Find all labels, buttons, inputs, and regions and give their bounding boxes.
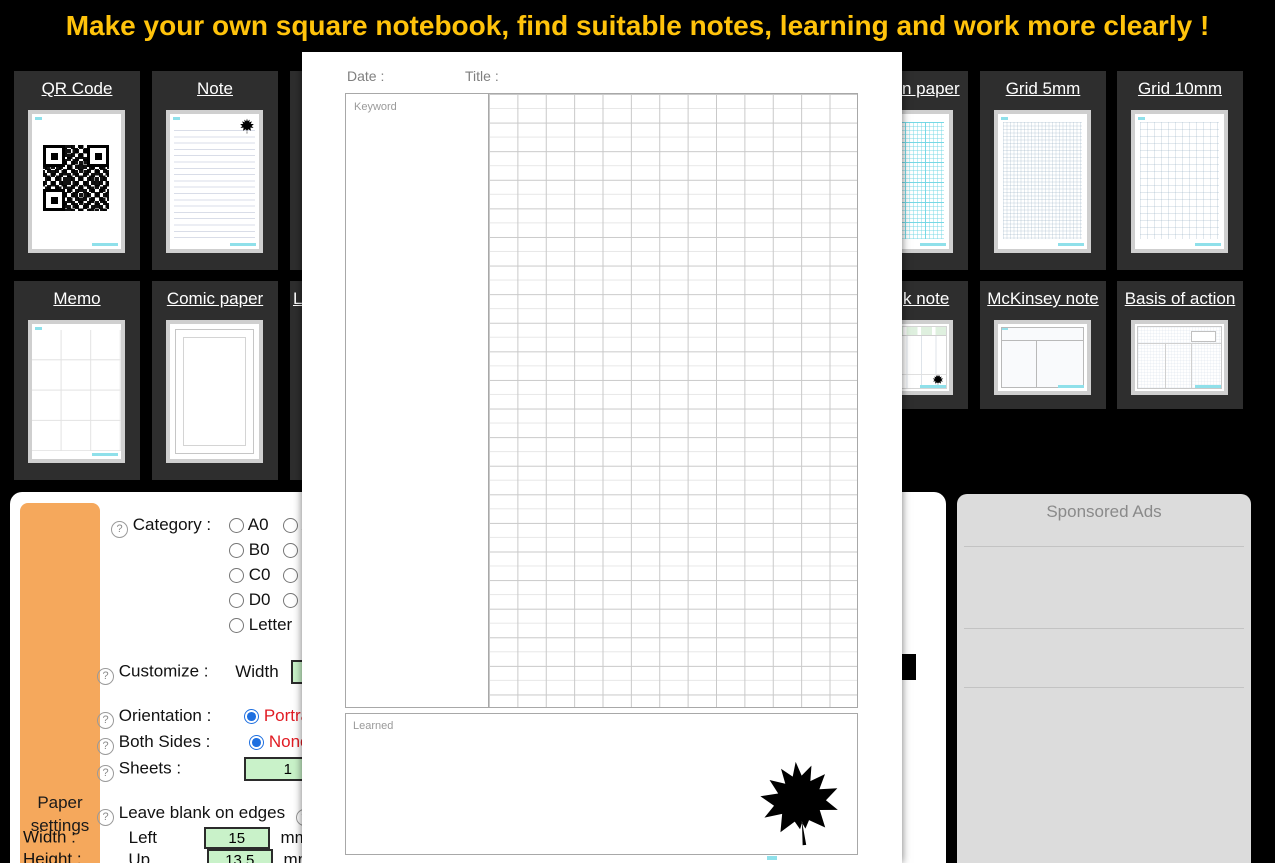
watermark bbox=[230, 243, 256, 246]
card-grid-10mm-link[interactable]: Grid 10mm bbox=[1117, 79, 1243, 99]
ads-divider bbox=[964, 687, 1244, 688]
mckinsey-divider bbox=[1036, 341, 1037, 387]
card-basis-of-action-link[interactable]: Basis of action bbox=[1117, 289, 1243, 309]
radio-d1[interactable] bbox=[283, 593, 298, 608]
margin-width-label: Width : bbox=[23, 828, 76, 847]
margin-left-input[interactable] bbox=[204, 827, 270, 849]
mckinsey-note-preview[interactable] bbox=[994, 320, 1091, 395]
blank-edges-row: ? Leave blank on edges ? bbox=[97, 803, 313, 826]
card-grid-10mm: Grid 10mm bbox=[1117, 71, 1243, 270]
basis-header-box bbox=[1191, 331, 1216, 343]
tab-label-line1: Paper bbox=[20, 793, 100, 813]
card-grid-5mm-link[interactable]: Grid 5mm bbox=[980, 79, 1106, 99]
mckinsey-frame bbox=[1001, 327, 1084, 388]
radio-a0[interactable] bbox=[229, 518, 244, 533]
memo-grid bbox=[32, 330, 121, 451]
margin-up-input[interactable] bbox=[207, 849, 273, 863]
grid-10mm-preview[interactable] bbox=[1131, 110, 1228, 253]
radio-d0[interactable] bbox=[229, 593, 244, 608]
note-body-box: Keyword bbox=[345, 93, 858, 708]
sponsored-ads-panel: Sponsored Ads bbox=[957, 494, 1251, 863]
margin-up-label: Up bbox=[128, 850, 150, 863]
margin-left-label: Left bbox=[129, 828, 157, 847]
card-memo-link[interactable]: Memo bbox=[14, 289, 140, 309]
radio-b1[interactable] bbox=[283, 543, 298, 558]
radio-none[interactable] bbox=[249, 735, 264, 750]
radio-portrait[interactable] bbox=[244, 709, 259, 724]
watermark bbox=[920, 243, 946, 246]
qr-finder-icon bbox=[43, 145, 65, 167]
basis-divider bbox=[1191, 343, 1192, 388]
basis-of-action-preview[interactable] bbox=[1131, 320, 1228, 395]
watermark bbox=[1058, 243, 1084, 246]
help-icon[interactable]: ? bbox=[97, 712, 114, 729]
card-note: Note bbox=[152, 71, 278, 270]
sponsored-ads-title: Sponsored Ads bbox=[957, 502, 1251, 522]
corner-mark bbox=[173, 117, 180, 120]
keyword-label: Keyword bbox=[354, 101, 397, 113]
basis-divider bbox=[1165, 343, 1166, 388]
margin-height-label: Height : bbox=[23, 850, 82, 863]
orientation-row: ? Orientation : Portrait bbox=[97, 706, 319, 729]
card-note-link[interactable]: Note bbox=[152, 79, 278, 99]
card-basis-of-action: Basis of action bbox=[1117, 281, 1243, 409]
radio-a0-label: A0 bbox=[248, 515, 269, 534]
radio-c0[interactable] bbox=[229, 568, 244, 583]
card-qr-code: QR Code bbox=[14, 71, 140, 270]
paper-preview-modal: Date : Title : Keyword Learned bbox=[302, 52, 902, 863]
mckinsey-header-line bbox=[1002, 340, 1083, 341]
sheets-label: Sheets : bbox=[119, 759, 181, 778]
top-banner: Make your own square notebook, find suit… bbox=[0, 0, 1275, 52]
grid-5mm-preview[interactable] bbox=[994, 110, 1091, 253]
grid-10mm-grid bbox=[1140, 122, 1219, 239]
customize-width-label: Width bbox=[235, 662, 278, 681]
help-icon[interactable]: ? bbox=[111, 521, 128, 538]
orientation-label: Orientation : bbox=[119, 706, 212, 725]
radio-b0[interactable] bbox=[229, 543, 244, 558]
keyword-column: Keyword bbox=[346, 94, 489, 707]
radio-d0-label: D0 bbox=[249, 590, 271, 609]
corner-mark bbox=[35, 117, 42, 120]
watermark bbox=[92, 453, 118, 456]
date-label: Date : bbox=[347, 68, 384, 84]
card-grid-5mm: Grid 5mm bbox=[980, 71, 1106, 270]
card-memo: Memo bbox=[14, 281, 140, 480]
sheets-row: ? Sheets : bbox=[97, 757, 332, 782]
corner-mark bbox=[1001, 117, 1008, 120]
color-swatch-black[interactable] bbox=[901, 654, 916, 680]
qr-code-icon bbox=[43, 145, 109, 211]
square-grid-area bbox=[489, 94, 857, 707]
card-comic-paper-link[interactable]: Comic paper bbox=[152, 289, 278, 309]
help-icon[interactable]: ? bbox=[97, 765, 114, 782]
learned-label: Learned bbox=[353, 720, 393, 732]
radio-a1[interactable] bbox=[283, 518, 298, 533]
basis-frame bbox=[1137, 326, 1222, 389]
category-letter-option: Letter bbox=[229, 615, 292, 635]
paper-settings-tab[interactable]: Paper settings bbox=[20, 503, 100, 863]
help-icon[interactable]: ? bbox=[97, 809, 114, 826]
radio-b0-label: B0 bbox=[249, 540, 270, 559]
card-graph-paper-link[interactable]: n paper bbox=[899, 79, 960, 99]
margin-height-row: Height : Up mm bbox=[23, 849, 312, 863]
corner-mark bbox=[1138, 117, 1145, 120]
blank-edges-label: Leave blank on edges bbox=[119, 803, 285, 822]
card-comic-paper: Comic paper bbox=[152, 281, 278, 480]
title-label: Title : bbox=[465, 68, 499, 84]
maple-leaf-icon bbox=[750, 753, 849, 854]
qr-code-preview[interactable] bbox=[28, 110, 125, 253]
radio-letter-label: Letter bbox=[249, 615, 292, 634]
category-label: Category : bbox=[133, 515, 211, 534]
help-icon[interactable]: ? bbox=[97, 738, 114, 755]
category-d0-option: D0 bbox=[229, 590, 270, 610]
comic-frame-inner bbox=[183, 337, 246, 446]
ads-divider bbox=[964, 628, 1244, 629]
comic-paper-preview[interactable] bbox=[166, 320, 263, 463]
radio-letter[interactable] bbox=[229, 618, 244, 633]
category-c0-option: C0 bbox=[229, 565, 270, 585]
ads-divider bbox=[964, 546, 1244, 547]
ruled-lines bbox=[174, 130, 255, 239]
watermark bbox=[920, 385, 946, 388]
watermark bbox=[767, 856, 777, 860]
grid-5mm-grid bbox=[1003, 122, 1082, 239]
maple-leaf-icon bbox=[239, 118, 255, 134]
radio-c0-label: C0 bbox=[249, 565, 271, 584]
watermark bbox=[92, 243, 118, 246]
note-preview[interactable] bbox=[166, 110, 263, 253]
card-mckinsey-note-link[interactable]: McKinsey note bbox=[980, 289, 1106, 309]
margin-width-row: Width : Left mm bbox=[23, 827, 309, 849]
memo-preview[interactable] bbox=[28, 320, 125, 463]
qr-finder-icon bbox=[43, 189, 65, 211]
customize-label: Customize : bbox=[119, 662, 209, 681]
radio-c1[interactable] bbox=[283, 568, 298, 583]
category-b0-option: B0 bbox=[229, 540, 270, 560]
learned-box: Learned bbox=[345, 713, 858, 855]
page-title: Make your own square notebook, find suit… bbox=[66, 10, 1210, 42]
watermark bbox=[1058, 385, 1084, 388]
watermark bbox=[1195, 385, 1221, 388]
help-icon[interactable]: ? bbox=[97, 668, 114, 685]
both-sides-label: Both Sides : bbox=[119, 732, 211, 751]
both-sides-row: ? Both Sides : None bbox=[97, 732, 310, 755]
qr-finder-icon bbox=[87, 145, 109, 167]
card-mckinsey-note: McKinsey note bbox=[980, 281, 1106, 409]
card-qr-code-link[interactable]: QR Code bbox=[14, 79, 140, 99]
category-row: ? Category : bbox=[111, 515, 211, 538]
card-hidden-2-link[interactable]: L bbox=[290, 289, 302, 309]
basis-header-line bbox=[1138, 343, 1221, 344]
category-a0-option: A0 bbox=[229, 515, 269, 535]
watermark bbox=[1195, 243, 1221, 246]
card-work-note-link[interactable]: k note bbox=[900, 289, 949, 309]
